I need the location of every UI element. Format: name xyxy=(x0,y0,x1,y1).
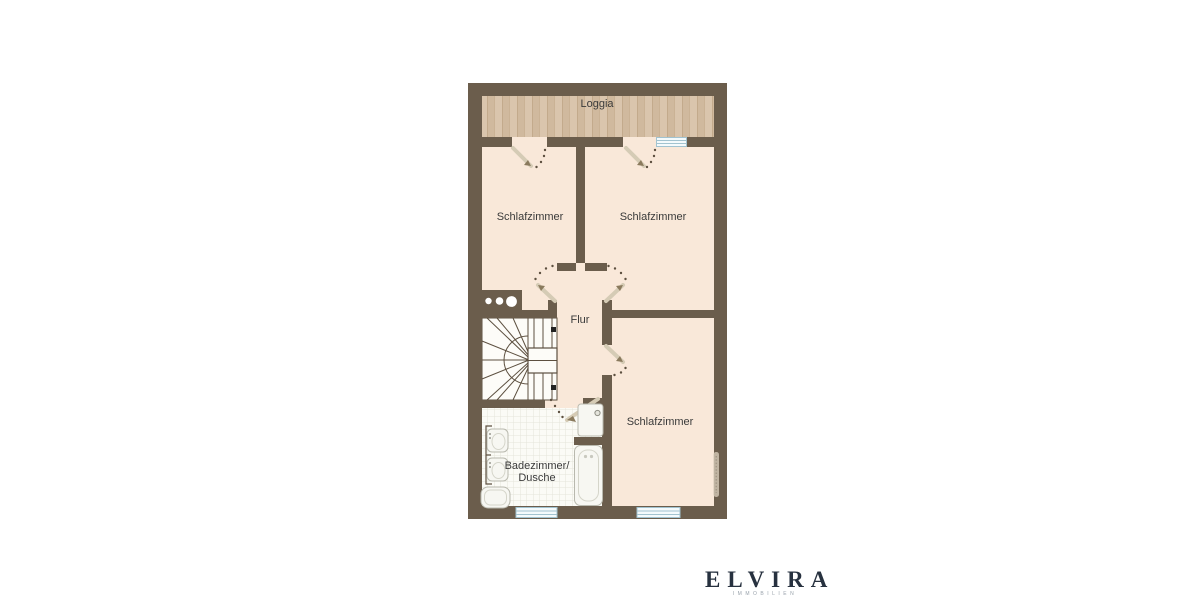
watermark xyxy=(714,452,720,497)
stair-post xyxy=(551,327,556,332)
stair-post xyxy=(551,385,556,390)
staircase-icon xyxy=(482,318,557,400)
window-icon-bedroom xyxy=(637,508,680,518)
room-label-badezimmer-line2: Dusche xyxy=(518,472,555,484)
brand-logo-name: ELVIRA xyxy=(698,569,829,590)
window-icon-loggia xyxy=(657,138,687,147)
utility-shaft-icon xyxy=(480,290,522,317)
window-icon-bathroom xyxy=(516,508,557,518)
room-label-loggia: Loggia xyxy=(580,98,614,110)
room-label-badezimmer-line1: Badezimmer/ xyxy=(505,460,571,472)
brand-logo: ELVIRA IMMOBILIEN xyxy=(698,569,829,597)
room-label-schlafzimmer-bottom: Schlafzimmer xyxy=(627,416,694,428)
room-label-schlafzimmer-top-left: Schlafzimmer xyxy=(497,211,564,223)
shower-icon xyxy=(578,404,603,436)
room-label-schlafzimmer-top-right: Schlafzimmer xyxy=(620,211,687,223)
sink-icon xyxy=(481,487,510,508)
room-label-flur: Flur xyxy=(571,314,590,326)
bathtub-icon xyxy=(575,446,603,506)
toilet-icon xyxy=(487,429,508,452)
floor-plan: Loggia Schlafzimmer Schlafzimmer Flur Sc… xyxy=(0,0,1200,600)
